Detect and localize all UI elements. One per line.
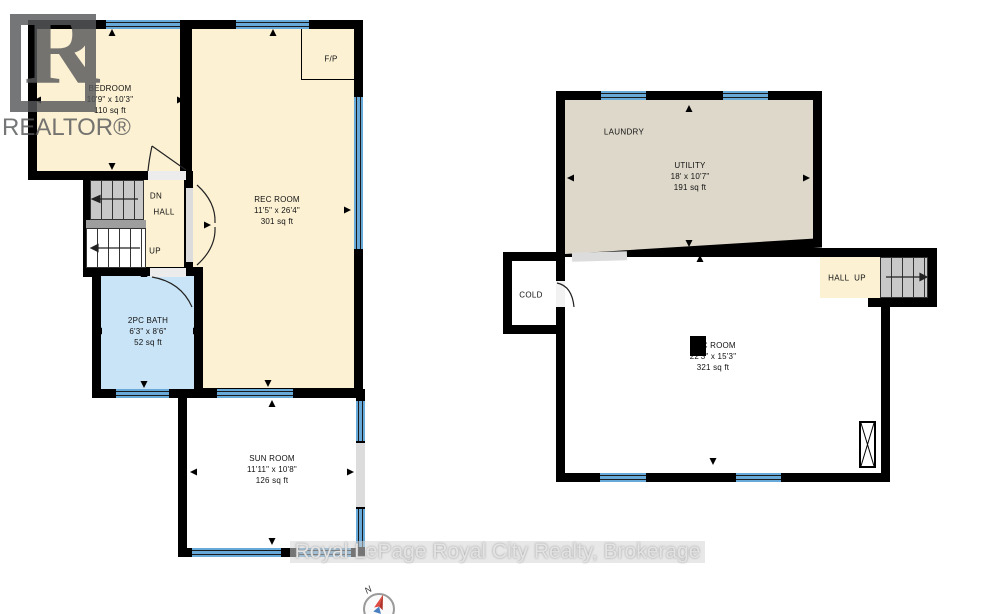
brokerage-watermark: Royal LePage Royal City Realty, Brokerag… — [290, 541, 705, 563]
room-area: 301 sq ft — [254, 217, 300, 228]
bedroom-door-gap — [148, 171, 186, 180]
recroom-right-window-1 — [600, 473, 646, 482]
room-area: 126 sq ft — [247, 476, 297, 487]
utility-window-2 — [723, 91, 768, 100]
recroom-right-window-2 — [736, 473, 781, 482]
cold-room-label: COLD — [519, 291, 542, 300]
sunroom-label: SUN ROOM 11'11" x 10'8" 126 sq ft — [247, 453, 297, 487]
realtor-logo: R REALTOR® — [2, 2, 122, 142]
room-dims: 18' x 10'7" — [671, 171, 710, 182]
stairs-landing — [86, 220, 146, 228]
room-name: 2PC BATH — [128, 315, 168, 326]
room-area: 52 sq ft — [128, 338, 168, 349]
room-area: 191 sq ft — [671, 183, 710, 194]
hall-recroom-door-gap — [186, 188, 193, 262]
recroom-left-label: REC ROOM 11'5" x 26'4" 301 sq ft — [254, 194, 300, 228]
compass-north-label: N — [363, 584, 374, 596]
stairs-up-right — [880, 257, 928, 298]
laundry-label: LAUNDRY — [604, 128, 644, 137]
room-name: UTILITY — [671, 160, 710, 171]
room-dims: 11'11" x 10'8" — [247, 464, 297, 475]
sunroom-bottom-window-1 — [192, 548, 281, 557]
hall-label: HALL — [153, 208, 174, 217]
cold-door-gap — [556, 281, 565, 307]
room-dims: 11'5" x 26'4" — [254, 205, 300, 216]
chimney — [859, 421, 876, 468]
compass-icon: N — [363, 584, 394, 614]
wall-below-stairs — [868, 298, 937, 307]
bath-label: 2PC BATH 6'3" x 8'6" 52 sq ft — [128, 315, 168, 349]
stairs-down-label: DN — [150, 192, 162, 201]
sunroom-side-door-gap — [356, 443, 365, 507]
realtor-logo-text: REALTOR® — [2, 114, 131, 142]
fireplace-label: F/P — [324, 55, 337, 64]
hall-up-label: HALL UP — [828, 274, 866, 283]
stairs-down — [90, 180, 144, 220]
bath-door-gap — [150, 268, 186, 277]
sunroom-right-window-1 — [356, 401, 365, 441]
room-dims: 6'3" x 8'6" — [128, 326, 168, 337]
recroom-right-window — [354, 97, 363, 249]
floor-plan-canvas: BEDROOM 10'9" x 10'3" 110 sq ft REC ROOM… — [0, 0, 987, 614]
room-name: REC ROOM — [254, 194, 300, 205]
utility-label: UTILITY 18' x 10'7" 191 sq ft — [671, 160, 710, 194]
utility-window-1 — [601, 91, 646, 100]
recroom-top-window — [236, 20, 309, 29]
utility-door-gap — [572, 251, 627, 262]
bath-window — [116, 389, 169, 398]
recroom-sunroom-window — [217, 389, 293, 398]
stairs-up-label: UP — [149, 247, 161, 256]
stairs-up — [86, 228, 146, 268]
realtor-logo-letter: R — [24, 0, 99, 103]
room-name: SUN ROOM — [247, 453, 297, 464]
support-post — [690, 336, 706, 356]
room-area: 321 sq ft — [690, 363, 736, 374]
